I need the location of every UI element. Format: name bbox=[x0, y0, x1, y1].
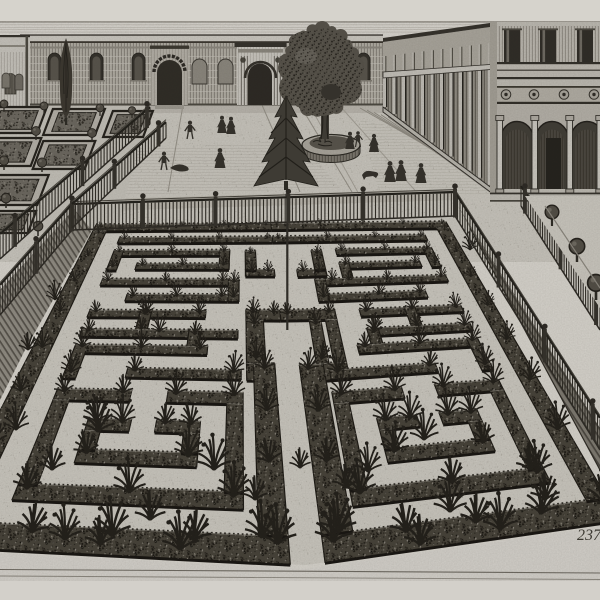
svg-text:237: 237 bbox=[577, 527, 600, 544]
